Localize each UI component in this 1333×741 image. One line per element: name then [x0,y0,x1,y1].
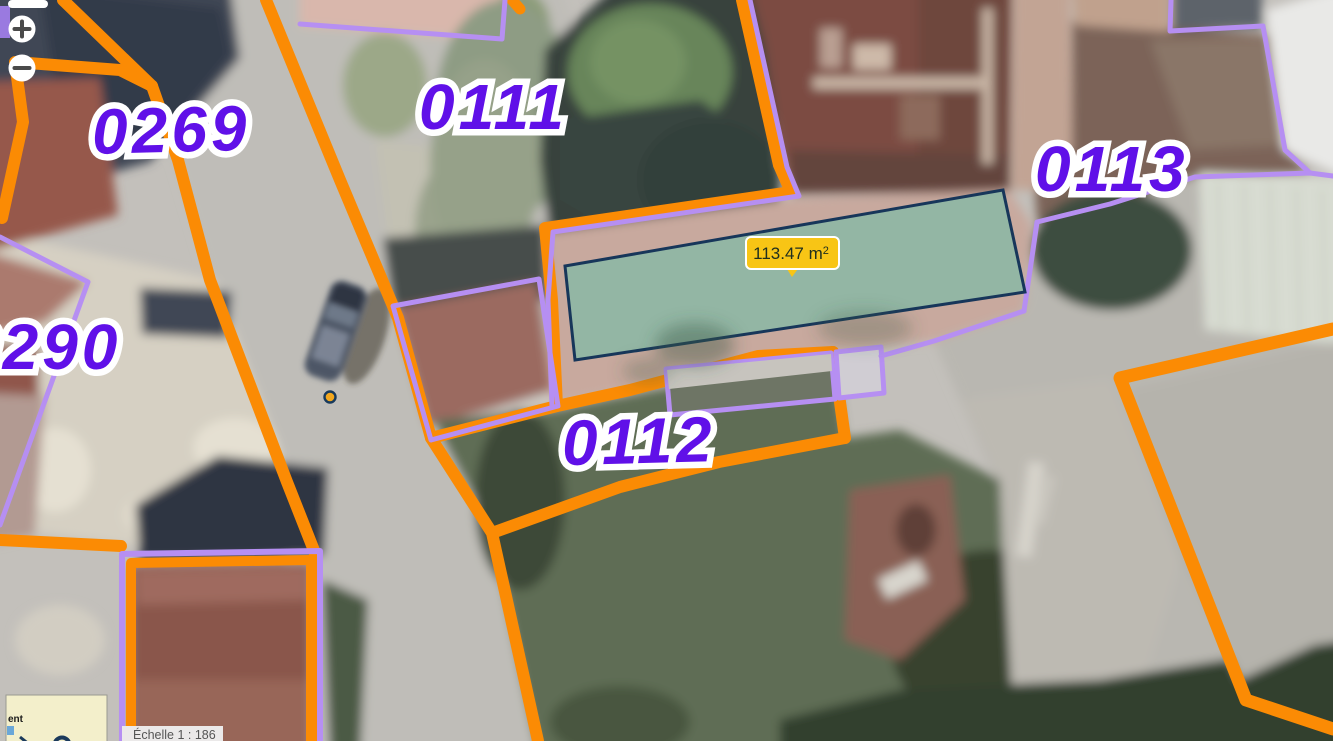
svg-text:Échelle 1 : 186: Échelle 1 : 186 [133,727,216,741]
svg-text:0112: 0112 [561,403,716,479]
svg-text:0269: 0269 [91,92,251,168]
svg-text:0111: 0111 [419,71,568,143]
svg-text:0113: 0113 [1035,133,1189,205]
svg-text:ent: ent [8,714,24,725]
svg-text:0290: 0290 [0,311,121,383]
svg-text:113.47 m2: 113.47 m2 [753,244,829,263]
